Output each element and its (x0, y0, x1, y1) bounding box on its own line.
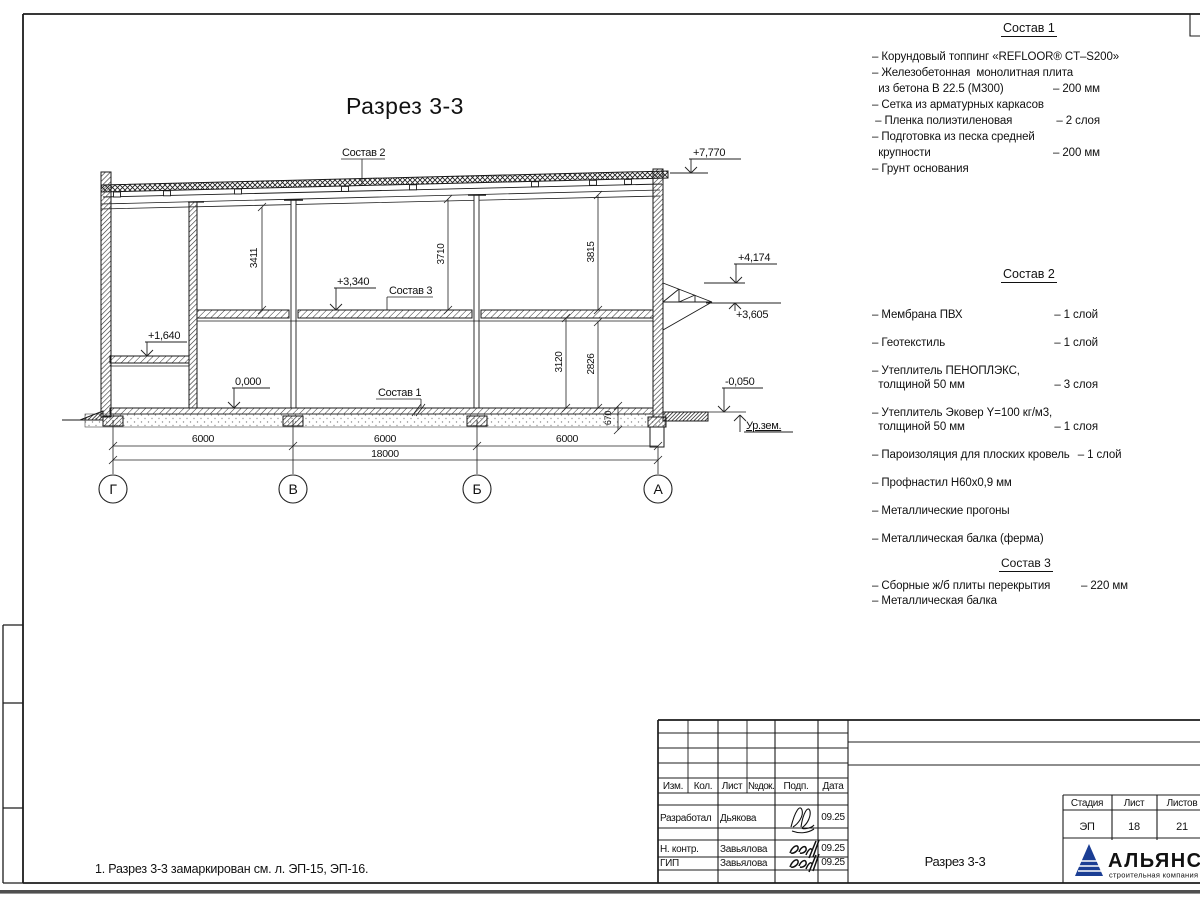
list-item: – Сборные ж/б плиты перекрытия– 220 мм (872, 579, 1128, 594)
sostav3-title: Состав 3 (999, 556, 1053, 572)
elev-canopy-top-mark (704, 264, 777, 283)
tb-header-dok: №док. (748, 781, 774, 792)
drawing-title: Разрез 3-3 (346, 93, 464, 119)
company-logo: АЛЬЯНС строительная компания (1075, 844, 1200, 880)
elev-roof: +7,770 (693, 147, 725, 159)
sheet-bottom-edge (0, 890, 1200, 894)
dim-bay-3: 6000 (556, 433, 579, 445)
dim-3815: 3815 (586, 241, 597, 263)
tb-date-gip: 09.25 (821, 857, 845, 868)
mezzanine-slab (110, 356, 189, 366)
list-item: – Утеплитель Эковер Y=100 кг/м3, (872, 406, 1098, 420)
callout-sostav3: Состав 3 (389, 285, 432, 297)
list-item: – Металлические прогоны (872, 504, 1098, 518)
sostav1-list: – Корундовый топпинг «REFLOOR® CT–S200» … (872, 49, 1100, 177)
tb-stage-value: ЭП (1079, 821, 1095, 833)
elev-slab-mark (330, 288, 376, 310)
elev-slab: +3,340 (337, 276, 369, 288)
tb-header-data: Дата (823, 781, 845, 792)
sheet-note: 1. Разрез 3-3 замаркирован см. л. ЭП-15,… (95, 862, 368, 876)
axis-label-v: В (288, 481, 297, 497)
tb-sheets-value: 21 (1176, 821, 1188, 833)
dim-2826: 2826 (586, 353, 597, 375)
tb-role-ncontrol: Н. контр. (660, 844, 699, 855)
list-item: – Железобетонная монолитная плита (872, 65, 1100, 81)
axis-bubbles (99, 475, 672, 503)
list-item: – Профнастил Н60х0,9 мм (872, 476, 1098, 490)
tb-sheet-value: 18 (1128, 821, 1140, 833)
elev-mezzanine-mark (141, 342, 187, 356)
tb-header-izm: Изм. (663, 781, 683, 792)
section-drawing (62, 169, 746, 447)
roof-truss-chords (101, 190, 660, 209)
column-axis-b (468, 195, 486, 408)
list-item: крупности– 200 мм (872, 145, 1100, 161)
dim-3710: 3710 (436, 243, 447, 265)
list-item: толщиной 50 мм– 3 слоя (872, 378, 1098, 392)
list-item: – Пароизоляция для плоских кровель– 1 сл… (872, 448, 1098, 462)
callout-sostav1-leader (376, 399, 421, 408)
dim-670: 670 (603, 411, 613, 425)
elev-canopy-bottom: +3,605 (736, 309, 768, 321)
dim-3411: 3411 (249, 247, 260, 268)
list-item: – Мембрана ПВХ– 1 слой (872, 308, 1098, 322)
tb-header-podp: Подп. (783, 781, 808, 792)
list-item: – Утеплитель ПЕНОПЛЭКС, (872, 364, 1098, 378)
right-wall (653, 169, 663, 417)
tb-stage-label: Стадия (1071, 798, 1103, 809)
list-item: – Металлическая балка (ферма) (872, 532, 1098, 546)
tb-role-developer: Разработал (660, 812, 712, 824)
tb-doc-title: Разрез 3-3 (925, 854, 986, 869)
tb-date-ncontrol: 09.25 (821, 843, 845, 854)
list-item: толщиной 50 мм– 1 слоя (872, 420, 1098, 434)
list-item: – Корундовый топпинг «REFLOOR® CT–S200» (872, 49, 1100, 65)
elev-floor: 0,000 (235, 376, 261, 388)
tb-name-ncontrol: Завьялова (720, 844, 768, 855)
tb-header-kol: Кол. (694, 781, 713, 792)
callout-sostav2: Состав 2 (342, 147, 385, 159)
axis-label-a: А (653, 481, 663, 497)
elev-floor-mark (228, 388, 270, 408)
dim-3120: 3120 (554, 351, 565, 373)
tb-header-list: Лист (722, 781, 743, 792)
left-wall (101, 172, 111, 417)
elev-pavement: -0,050 (725, 376, 755, 388)
tb-sheet-label: Лист (1124, 798, 1145, 809)
dim-total: 18000 (371, 448, 399, 460)
canopy-truss (663, 283, 712, 330)
axis-label-b: Б (473, 481, 482, 497)
logo-name: АЛЬЯНС (1108, 850, 1200, 872)
tb-role-gip: ГИП (660, 858, 679, 869)
floor-slab (85, 404, 665, 427)
callout-sostav3-leader (387, 297, 433, 310)
sostav2-list: – Мембрана ПВХ– 1 слой – Геотекстиль– 1 … (872, 308, 1098, 546)
elev-mezzanine: +1,640 (148, 330, 180, 342)
ramp-left (62, 411, 103, 420)
column-axis-v (284, 200, 303, 408)
signature-ncontrol (790, 840, 819, 858)
pavement-right (663, 412, 746, 421)
roof (101, 171, 668, 209)
margin-stamp-boxes (3, 625, 23, 883)
callout-sostav1: Состав 1 (378, 387, 421, 399)
axis-label-g: Г (109, 481, 117, 497)
axis-extension-lines (113, 420, 658, 474)
sostav3-list: – Сборные ж/б плиты перекрытия– 220 мм –… (872, 579, 1128, 609)
logo-subtitle: строительная компания (1109, 871, 1198, 880)
tb-name-developer: Дьякова (720, 813, 757, 824)
signature-developer (791, 808, 814, 833)
tb-date-developer: 09.25 (821, 812, 845, 823)
elev-pavement-mark (718, 388, 763, 412)
drawing-sheet: Разрез 3-3 Состав 2 Состав 3 Состав 1 +7… (0, 0, 1200, 900)
elev-canopy-top: +4,174 (738, 252, 770, 264)
list-item: – Геотекстиль– 1 слой (872, 336, 1098, 350)
drawing-texts: Разрез 3-3 Состав 2 Состав 3 Состав 1 +7… (109, 93, 781, 497)
ground-level-label: Ур.зем. (746, 420, 781, 432)
list-item: – Сетка из арматурных каркасов (872, 97, 1100, 113)
elev-roof-mark (670, 159, 741, 173)
tb-name-gip: Завьялова (720, 858, 768, 869)
corner-stamp-box (1190, 14, 1200, 36)
list-item: – Грунт основания (872, 161, 1100, 177)
list-item: из бетона В 22.5 (М300)– 200 мм (872, 81, 1100, 97)
list-item: – Подготовка из песка средней (872, 129, 1100, 145)
list-item: – Пленка полиэтиленовая– 2 слоя (872, 113, 1100, 129)
sostav2-title: Состав 2 (1001, 267, 1057, 283)
list-item: – Металлическая балка (872, 594, 1128, 609)
dim-bay-2: 6000 (374, 433, 397, 445)
dim-bay-1: 6000 (192, 433, 215, 445)
interior-wall (189, 202, 197, 408)
sostav1-title: Состав 1 (1001, 21, 1057, 37)
tb-sheets-label: Листов (1167, 798, 1198, 809)
slab-3340 (197, 310, 653, 321)
